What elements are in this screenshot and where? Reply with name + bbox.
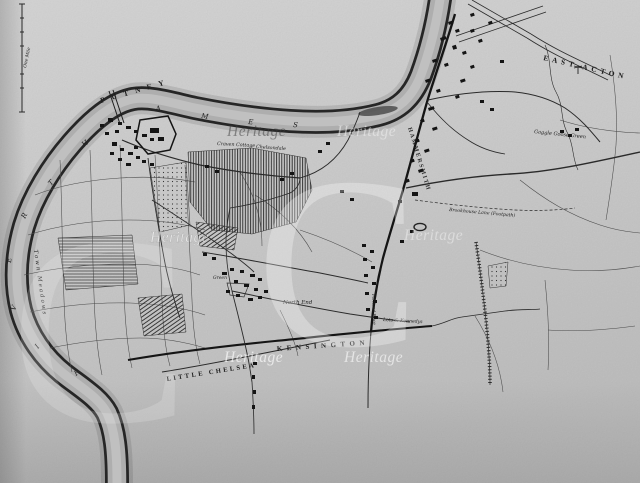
building-block <box>244 284 249 287</box>
building-block <box>120 148 124 151</box>
map-canvas: One Mile PUTNEY EAST ACTON KENSINGTON LI… <box>0 0 640 483</box>
building-block <box>128 152 133 155</box>
building-block <box>126 163 131 166</box>
building-block <box>112 142 117 146</box>
building-block <box>105 132 109 135</box>
building-block <box>205 165 209 168</box>
label-green: Green <box>213 275 227 281</box>
scanned-map-photo: One Mile PUTNEY EAST ACTON KENSINGTON LI… <box>0 0 640 483</box>
building-block <box>134 130 138 133</box>
building-block <box>126 126 131 129</box>
building-block <box>240 270 244 273</box>
building-block <box>142 134 147 137</box>
building-block <box>236 294 240 297</box>
building-block <box>500 60 504 63</box>
building-block <box>150 138 154 141</box>
building-block <box>222 272 227 275</box>
heritage-watermark: Heritage <box>149 229 209 246</box>
building-block <box>150 163 154 166</box>
building-block <box>252 375 255 379</box>
building-block <box>480 100 484 103</box>
heritage-watermark: Heritage <box>343 349 403 366</box>
building-block <box>212 257 216 260</box>
heritage-logo-c-left: C <box>10 181 190 480</box>
building-block <box>110 152 114 155</box>
heritage-watermark: Heritage <box>336 123 396 140</box>
heritage-watermark: Heritage <box>223 349 283 366</box>
building-block <box>203 253 207 256</box>
building-block <box>142 160 146 163</box>
building-block <box>248 298 253 301</box>
building-block <box>118 122 122 125</box>
building-block <box>226 290 230 293</box>
building-block <box>115 130 119 133</box>
building-block <box>100 124 104 127</box>
building-block <box>230 268 234 271</box>
svg-text:A: A <box>154 104 161 113</box>
building-block <box>134 146 138 149</box>
building-block <box>215 170 219 173</box>
heritage-watermark: Heritage <box>226 123 286 140</box>
building-block <box>575 128 579 131</box>
building-block <box>252 405 255 409</box>
building-block <box>136 156 140 159</box>
building-block <box>250 274 255 277</box>
building-block <box>108 118 113 122</box>
building-block <box>234 280 238 283</box>
heritage-watermark: Heritage <box>403 227 463 244</box>
building-block <box>490 108 494 111</box>
building-block <box>118 158 122 161</box>
